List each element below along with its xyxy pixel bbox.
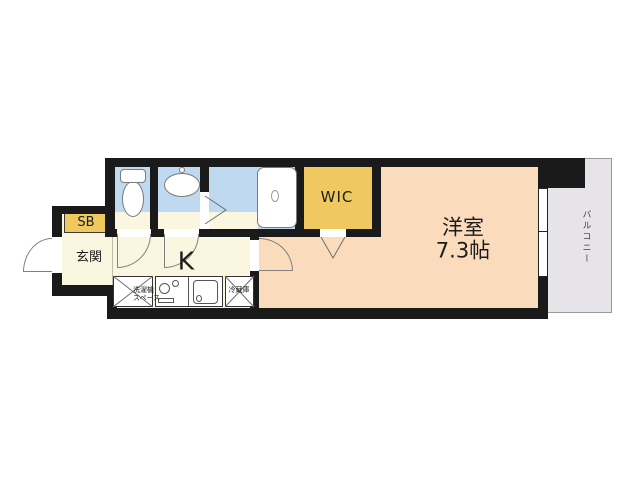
refrigerator-label: 冷蔵庫 [229,287,250,295]
plan-line-overlay [0,0,640,480]
floor-plan: SB 玄関 K WIC 洋室 7.3帖 バルコニー 洗濯機 スペース 冷蔵庫 [0,0,640,480]
western-room-size: 7.3帖 [436,239,490,262]
wic-label: WIC [321,189,354,206]
washer-space-label-line2: スペース [133,295,160,303]
shoe-box-label: SB [77,216,94,230]
kitchen-label: K [178,247,194,275]
entrance-label: 玄関 [76,251,102,265]
balcony-label: バルコニー [580,210,593,265]
western-room-name: 洋室 [442,216,484,239]
